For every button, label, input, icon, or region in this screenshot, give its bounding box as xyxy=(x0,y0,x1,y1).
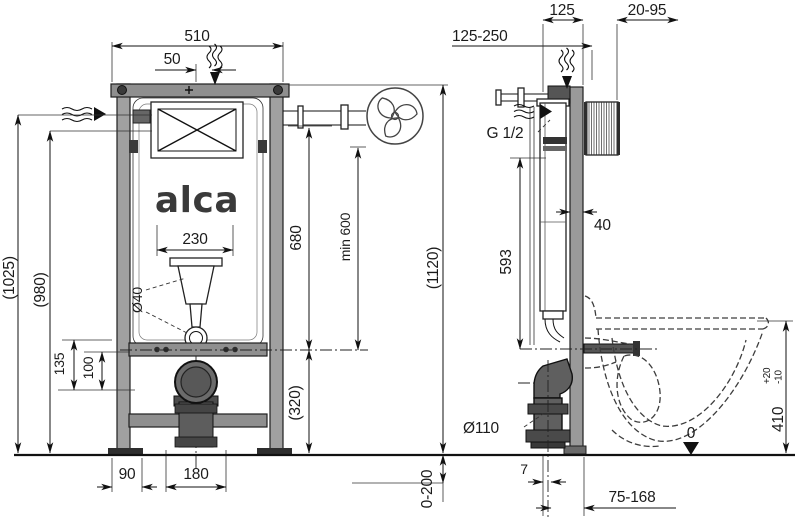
mounting-rod xyxy=(584,344,637,353)
inlet-flange-a xyxy=(298,106,303,128)
dim-bowl-tol-plus: +20 xyxy=(762,367,773,384)
flush-funnel xyxy=(178,266,214,304)
bracket-bolt xyxy=(223,347,229,353)
inlet-rosette-detail-icon xyxy=(367,88,423,144)
inlet-flange-b xyxy=(341,105,348,129)
dim-drain-height: (320) xyxy=(287,385,304,420)
corner-bolt-left xyxy=(118,86,127,95)
dim-frame-depth: 125 xyxy=(549,2,574,19)
fill-valve xyxy=(133,110,150,123)
front-view: alca xyxy=(62,44,423,470)
inlet-pipe xyxy=(283,111,366,125)
bracket-bolt xyxy=(232,347,238,353)
corner-bolt-right xyxy=(274,86,283,95)
fixing-bracket-bar xyxy=(543,137,567,144)
inlet-stub-flange xyxy=(496,90,501,105)
dim-height-note-upper: (1025) xyxy=(1,256,18,300)
frame-top-rail xyxy=(111,84,289,97)
dim-height-note-lower: (980) xyxy=(32,272,49,307)
dim-drain-spacing: 180 xyxy=(183,466,209,483)
flush-bend-side xyxy=(545,319,564,342)
plate-foot xyxy=(564,446,586,454)
wc-frame-technical-drawing: alca xyxy=(0,0,800,520)
dim-foot-width: 90 xyxy=(119,466,136,483)
dim-wall-finish-range: 20-95 xyxy=(628,2,667,19)
dim-foot-gap: 7 xyxy=(520,461,528,477)
dim-bowl-tol-minus: -10 xyxy=(774,370,785,384)
cistern-outlet xyxy=(543,311,563,319)
wall-anchor-left xyxy=(129,140,138,153)
dim-connection-height: 593 xyxy=(498,249,515,274)
label-floor-level: 0 xyxy=(687,425,696,442)
cistern-side-profile xyxy=(540,103,566,311)
dim-width-total: 510 xyxy=(184,28,210,45)
bracket-bolt xyxy=(163,347,169,353)
water-supply-arrow-icon xyxy=(62,107,106,122)
frame-side-profile xyxy=(530,107,534,345)
label-water-connection: G 1/2 xyxy=(487,125,524,142)
dim-drain-dia: Ø110 xyxy=(463,420,500,437)
drain-band-upper xyxy=(175,404,217,413)
dim-min-height: min 600 xyxy=(337,212,353,261)
drain-band-lower xyxy=(175,437,217,447)
dim-flush-pipe-height: 680 xyxy=(288,225,305,251)
dim-frame-height: (1120) xyxy=(425,247,442,289)
dim-flush-offset: 50 xyxy=(164,51,181,68)
dim-bracket-b: 100 xyxy=(80,356,96,379)
drain-elbow-inner xyxy=(181,367,211,397)
dim-profile-depth: 40 xyxy=(594,217,611,234)
fixing-bracket-bar2 xyxy=(543,146,567,151)
dim-flush-pipe-dia: Ø40 xyxy=(129,287,145,313)
technical-drawing-page: alca xyxy=(0,0,800,520)
dim-cistern-width: 230 xyxy=(182,231,208,248)
toilet-bowl-outline xyxy=(585,296,768,446)
bracket-bolt xyxy=(154,347,160,353)
flush-actuator-module xyxy=(584,102,620,155)
dim-outlet-range: 75-168 xyxy=(608,489,655,506)
flush-air-arrow-icon xyxy=(207,44,222,85)
brand-logo: alca xyxy=(155,180,239,221)
dim-bowl-height: 410 xyxy=(770,406,787,432)
dim-depth-range: 125-250 xyxy=(452,28,508,45)
dim-bracket-a: 135 xyxy=(51,352,67,375)
side-view: G 1/2 xyxy=(487,48,769,518)
dim-leg-adjust-range: 0-200 xyxy=(419,469,436,508)
frame-post-left xyxy=(117,84,130,450)
bowl-bracket-rail xyxy=(129,343,267,356)
frame-post-right xyxy=(270,84,283,450)
wall-anchor-right xyxy=(258,140,267,153)
flush-bend-cap xyxy=(170,258,222,266)
plate-top-arrow-icon xyxy=(559,48,574,89)
mounting-plate xyxy=(570,87,583,448)
dim-bowl-height-group: 410 +20 -10 xyxy=(762,367,787,432)
drain-elbow-side xyxy=(526,359,572,448)
mounting-rod-nut xyxy=(633,341,640,356)
flush-neck xyxy=(190,304,202,327)
